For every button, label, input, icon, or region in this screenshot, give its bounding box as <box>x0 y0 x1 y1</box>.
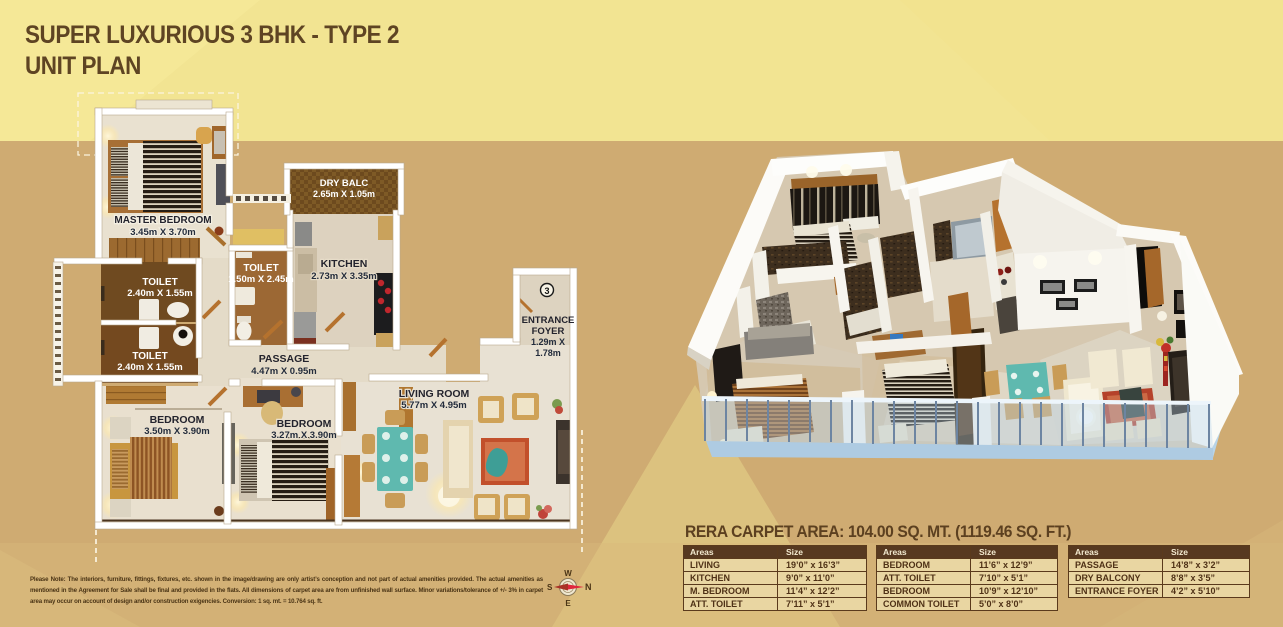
svg-text:W: W <box>564 569 572 578</box>
svg-text:S: S <box>547 583 553 592</box>
svg-text:N: N <box>585 582 592 592</box>
svg-text:E: E <box>565 599 571 608</box>
